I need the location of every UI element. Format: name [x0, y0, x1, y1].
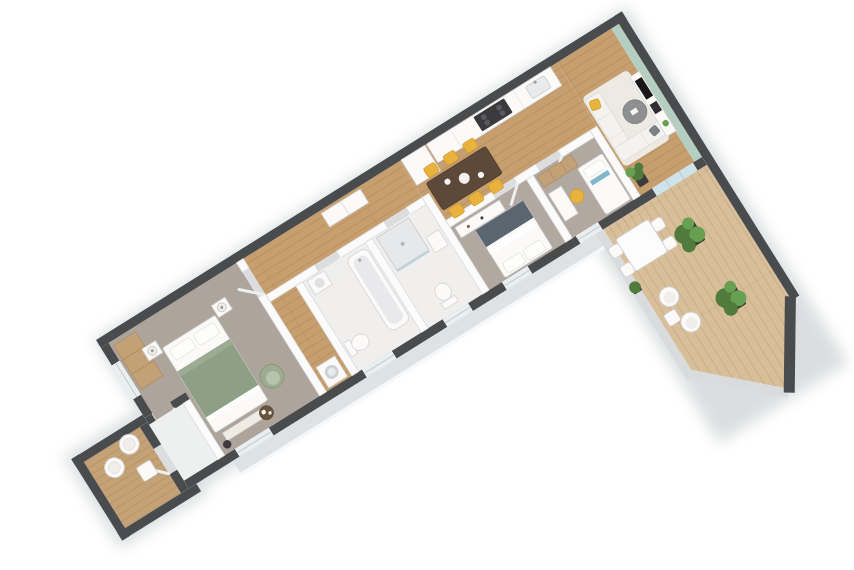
- floor-plan-canvas: 3D apartment floor plan: [0, 0, 854, 570]
- floors: [37, 24, 831, 570]
- floor-plan-stage: 3D apartment floor plan: [0, 0, 854, 570]
